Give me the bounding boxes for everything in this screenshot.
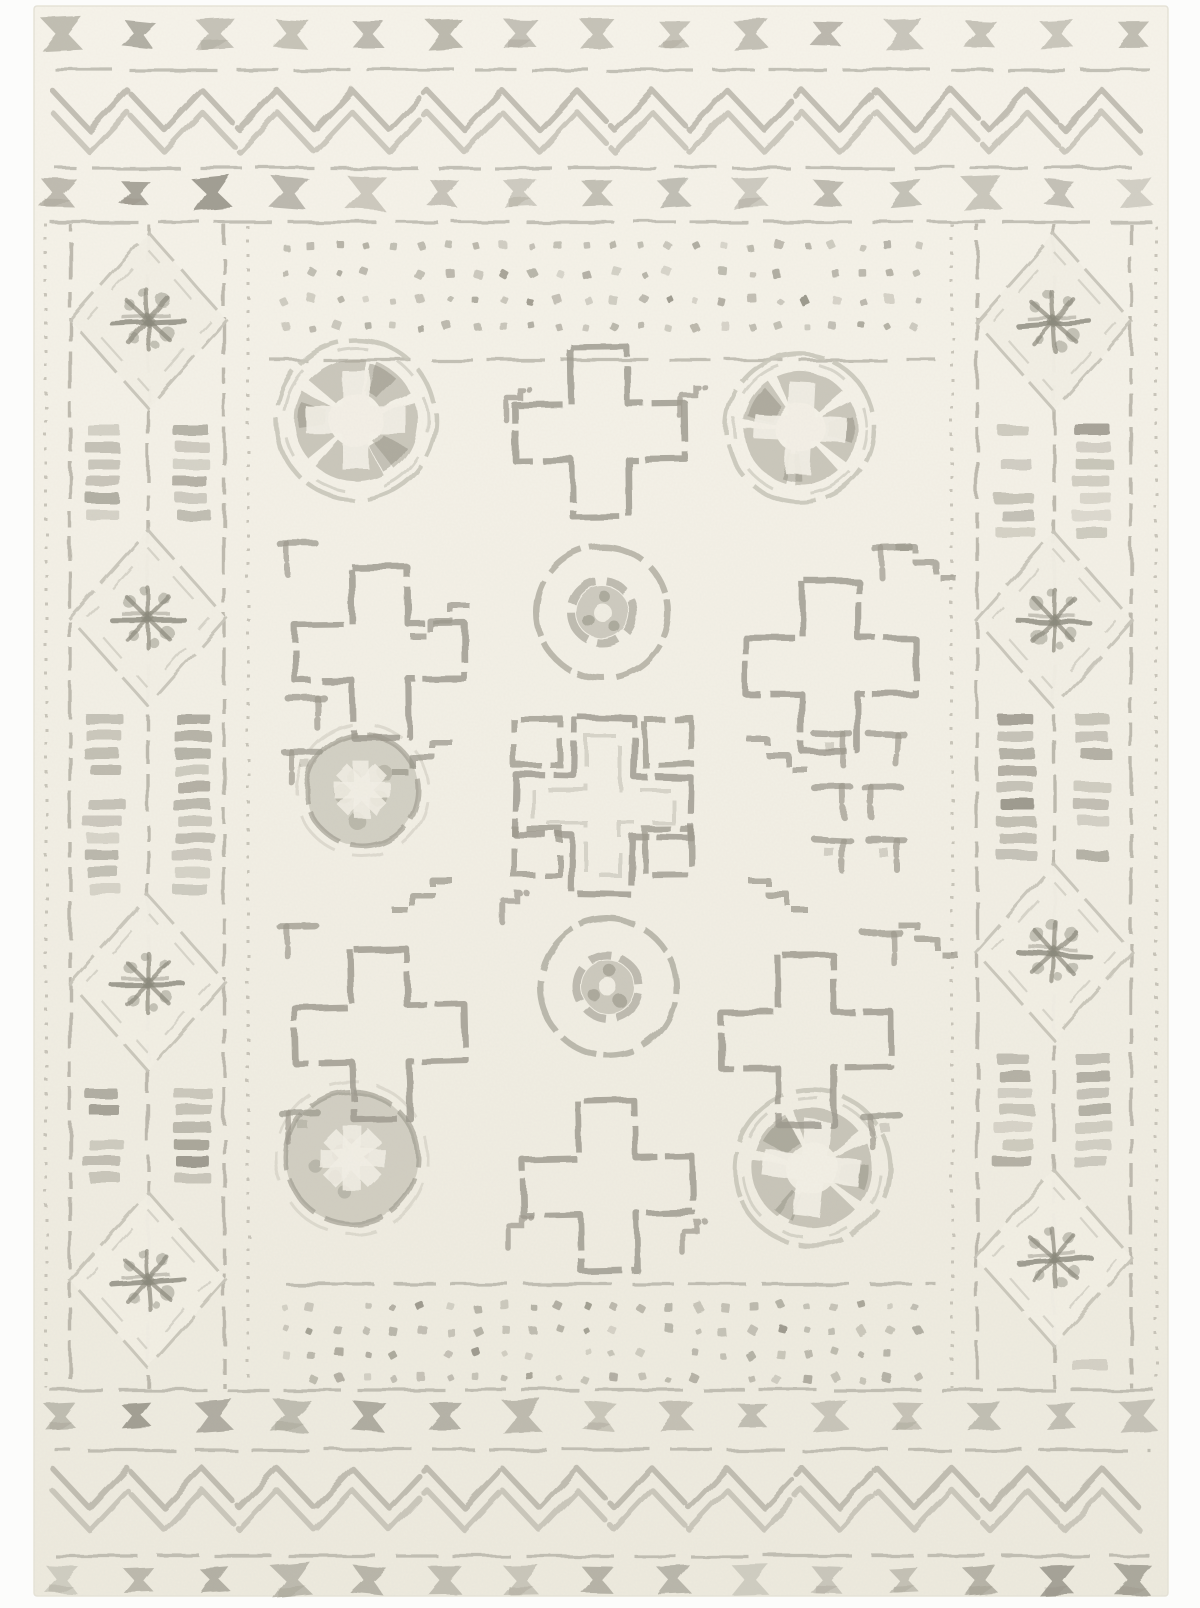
rug-product-photo	[0, 0, 1200, 1608]
rug-image	[0, 0, 1200, 1608]
fabric-grain-texture	[34, 6, 1168, 1596]
